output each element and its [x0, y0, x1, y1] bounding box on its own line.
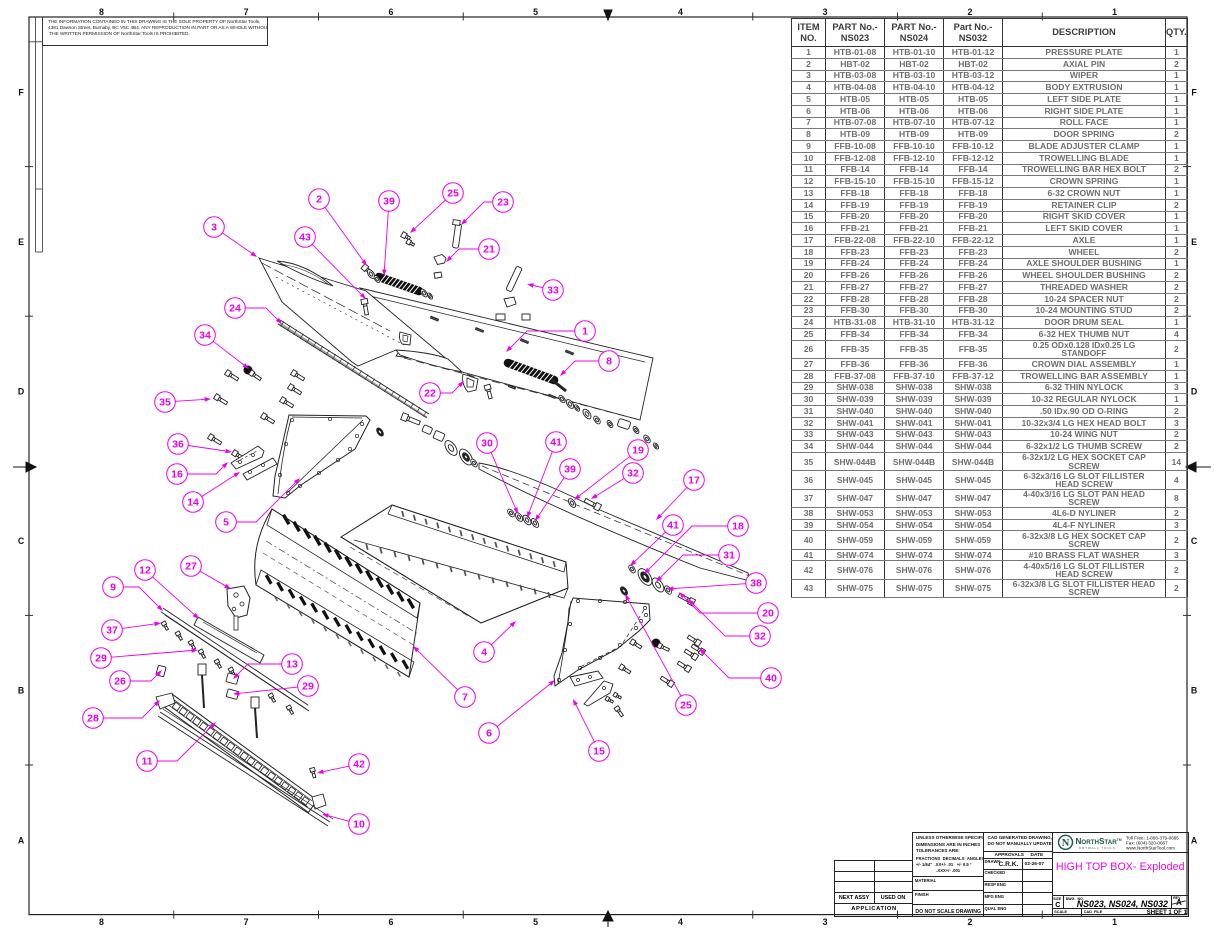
svg-text:5: 5	[533, 7, 538, 17]
svg-text:A: A	[1191, 835, 1198, 845]
svg-text:B: B	[1191, 686, 1197, 696]
svg-text:1: 1	[1112, 917, 1117, 927]
svg-text:B: B	[18, 686, 24, 696]
svg-text:33: 33	[547, 285, 559, 297]
svg-text:7: 7	[244, 917, 249, 927]
svg-text:3: 3	[823, 917, 828, 927]
svg-text:14: 14	[187, 497, 199, 509]
svg-text:F: F	[1191, 87, 1197, 97]
svg-text:4: 4	[481, 647, 487, 659]
svg-text:16: 16	[171, 469, 183, 481]
svg-text:6: 6	[388, 7, 393, 17]
svg-text:C: C	[1191, 536, 1198, 546]
svg-text:2: 2	[967, 7, 972, 17]
svg-text:3: 3	[211, 222, 217, 234]
svg-text:7: 7	[462, 692, 468, 704]
svg-text:9: 9	[110, 582, 116, 594]
svg-text:A: A	[18, 835, 25, 845]
svg-text:11: 11	[141, 756, 152, 768]
svg-text:10: 10	[353, 819, 365, 831]
svg-text:18: 18	[732, 521, 744, 533]
svg-text:NORTHSTARTM: NORTHSTARTM	[1075, 837, 1121, 846]
svg-text:40: 40	[765, 673, 777, 685]
svg-text:30: 30	[481, 438, 493, 450]
svg-text:38: 38	[750, 578, 762, 590]
svg-text:34: 34	[199, 330, 211, 342]
svg-text:21: 21	[483, 244, 495, 256]
svg-text:27: 27	[185, 561, 197, 573]
svg-text:4: 4	[678, 7, 683, 17]
svg-text:8: 8	[606, 356, 612, 368]
svg-text:2: 2	[316, 194, 322, 206]
svg-text:35: 35	[159, 397, 171, 409]
svg-text:25: 25	[447, 188, 459, 200]
svg-text:22: 22	[424, 388, 436, 400]
svg-text:12: 12	[139, 565, 151, 577]
svg-text:C: C	[18, 536, 25, 546]
svg-text:1: 1	[1112, 7, 1117, 17]
svg-text:www.NorthStarTool.com: www.NorthStarTool.com	[1126, 845, 1175, 850]
svg-text:26: 26	[114, 676, 126, 688]
svg-text:13: 13	[286, 659, 298, 671]
svg-text:8: 8	[99, 7, 104, 17]
svg-text:5: 5	[223, 517, 229, 529]
svg-text:37: 37	[106, 625, 118, 637]
svg-text:36: 36	[172, 439, 184, 451]
svg-text:32: 32	[754, 631, 766, 643]
svg-text:29: 29	[95, 653, 107, 665]
svg-text:41: 41	[550, 437, 562, 449]
svg-text:39: 39	[383, 196, 395, 208]
svg-text:F: F	[18, 87, 24, 97]
svg-text:D: D	[1191, 387, 1197, 397]
svg-text:43: 43	[299, 232, 311, 244]
svg-text:23: 23	[497, 197, 509, 209]
svg-text:20: 20	[762, 608, 774, 620]
svg-text:39: 39	[564, 464, 576, 476]
svg-text:1: 1	[582, 326, 588, 338]
svg-text:DRYWALL TOOLS: DRYWALL TOOLS	[1079, 846, 1116, 850]
svg-text:19: 19	[632, 445, 644, 457]
svg-text:4: 4	[678, 917, 683, 927]
svg-text:N: N	[1061, 838, 1069, 849]
svg-text:25: 25	[680, 700, 692, 712]
svg-text:6: 6	[486, 728, 492, 740]
svg-text:E: E	[18, 237, 24, 247]
svg-text:24: 24	[229, 303, 241, 315]
svg-text:41: 41	[667, 520, 679, 532]
svg-text:E: E	[1191, 237, 1197, 247]
svg-text:29: 29	[302, 681, 314, 693]
svg-text:31: 31	[723, 550, 735, 562]
svg-text:6: 6	[388, 917, 393, 927]
svg-text:3: 3	[823, 7, 828, 17]
svg-text:8: 8	[99, 917, 104, 927]
svg-text:D: D	[18, 387, 24, 397]
svg-text:7: 7	[244, 7, 249, 17]
svg-text:32: 32	[627, 468, 639, 480]
svg-text:17: 17	[688, 475, 700, 487]
svg-text:2: 2	[967, 917, 972, 927]
svg-text:15: 15	[593, 746, 605, 758]
svg-text:28: 28	[87, 713, 99, 725]
svg-text:42: 42	[353, 759, 365, 771]
svg-text:5: 5	[533, 917, 538, 927]
